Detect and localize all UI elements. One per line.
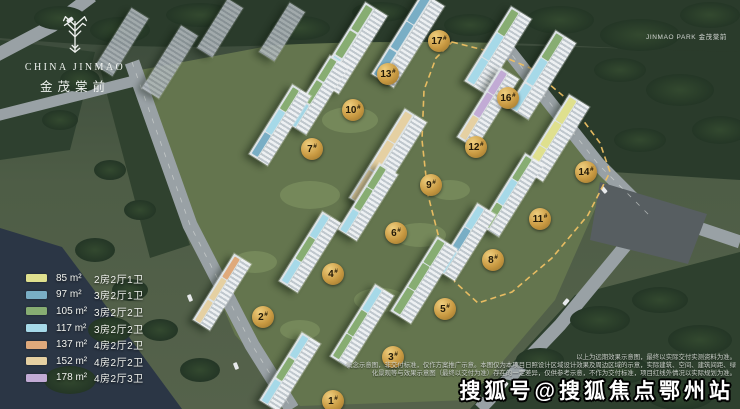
- building-badge-13: 13#: [377, 63, 399, 85]
- legend-area-label: 137 m²: [56, 339, 94, 350]
- building-badge-17: 17#: [428, 30, 450, 52]
- legend-item: 97 m²3房2厅1卫: [26, 287, 144, 304]
- building-badge-7: 7#: [301, 138, 323, 160]
- brand-logo: CHINA JINMAO 金茂棠前: [16, 12, 134, 95]
- building-badge-16: 16#: [497, 87, 519, 109]
- legend-color-swatch: [26, 291, 47, 299]
- corner-caption: JINMAO PARK 金茂棠前: [646, 31, 727, 41]
- legend-color-swatch: [26, 307, 47, 315]
- building-badge-5: 5#: [434, 298, 456, 320]
- building-badge-4: 4#: [322, 263, 344, 285]
- building-badge-6: 6#: [385, 222, 407, 244]
- building-badge-2: 2#: [252, 306, 274, 328]
- building-badge-11: 11#: [529, 208, 551, 230]
- legend: 85 m²2房2厅1卫97 m²3房2厅1卫105 m²3房2厅2卫117 m²…: [26, 270, 144, 386]
- legend-item: 152 m²4房2厅2卫: [26, 353, 144, 370]
- site-plan-render: 1#2#3#4#5#6#7#8#9#10#11#12#13#14#16#17# …: [0, 0, 740, 409]
- brand-name-cn: 金茂棠前: [16, 76, 134, 95]
- legend-item: 117 m²3房2厅2卫: [26, 320, 144, 337]
- legend-area-label: 97 m²: [56, 289, 94, 300]
- legend-layout-label: 3房2厅1卫: [94, 287, 144, 302]
- disclaimer-line: 以上为远期效果示意图，最终以实际交付实测资料为准。: [346, 354, 736, 362]
- legend-area-label: 105 m²: [56, 306, 94, 317]
- legend-color-swatch: [26, 274, 47, 282]
- legend-layout-label: 4房2厅3卫: [94, 370, 144, 385]
- legend-color-swatch: [26, 374, 47, 382]
- legend-layout-label: 2房2厅1卫: [94, 271, 144, 286]
- disclaimer-line: 概念示意图，非交付标准，仅作方案推广示意。本图仅为本项目日照设计区域设计效果及周…: [346, 362, 736, 370]
- brand-name-en: CHINA JINMAO: [16, 62, 134, 73]
- legend-color-swatch: [26, 357, 47, 365]
- watermark: 搜狐号@搜狐焦点鄂州站: [460, 375, 734, 405]
- building-badge-8: 8#: [482, 249, 504, 271]
- legend-layout-label: 3房2厅2卫: [94, 321, 144, 336]
- legend-color-swatch: [26, 341, 47, 349]
- legend-color-swatch: [26, 324, 47, 332]
- building-badge-1: 1#: [322, 390, 344, 409]
- legend-area-label: 178 m²: [56, 372, 94, 383]
- legend-item: 137 m²4房2厅2卫: [26, 336, 144, 353]
- legend-layout-label: 4房2厅2卫: [94, 354, 144, 369]
- building-badge-9: 9#: [420, 174, 442, 196]
- legend-item: 178 m²4房2厅3卫: [26, 370, 144, 387]
- building-badge-12: 12#: [465, 136, 487, 158]
- jinmao-tree-icon: [58, 12, 92, 54]
- building-badge-14: 14#: [575, 161, 597, 183]
- legend-layout-label: 4房2厅2卫: [94, 337, 144, 352]
- building-badge-10: 10#: [342, 99, 364, 121]
- legend-area-label: 152 m²: [56, 356, 94, 367]
- legend-area-label: 85 m²: [56, 273, 94, 284]
- legend-item: 105 m²3房2厅2卫: [26, 303, 144, 320]
- legend-area-label: 117 m²: [56, 323, 94, 334]
- legend-layout-label: 3房2厅2卫: [94, 304, 144, 319]
- legend-item: 85 m²2房2厅1卫: [26, 270, 144, 287]
